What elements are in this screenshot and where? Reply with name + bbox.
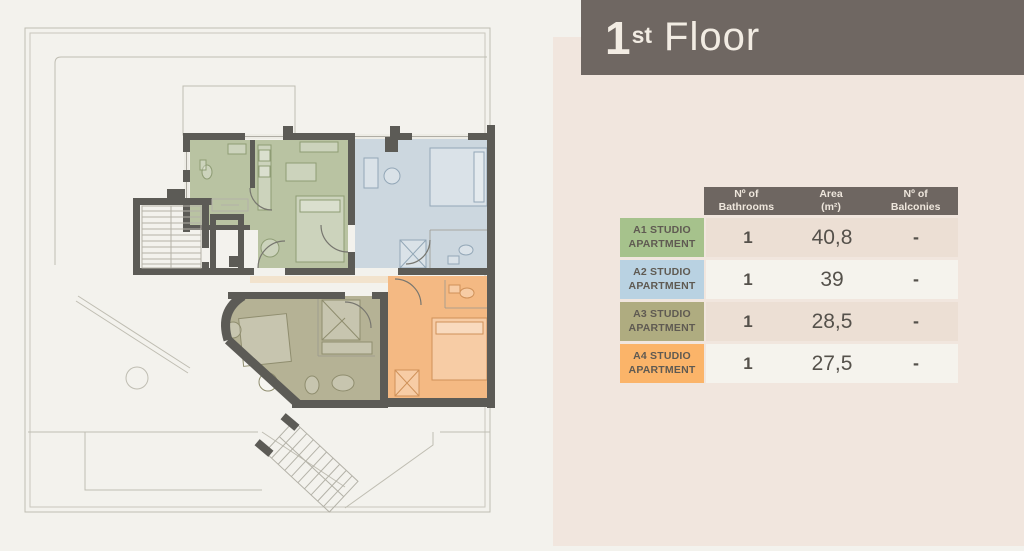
apartment-label-a4: A4 STUDIO APARTMENT xyxy=(620,344,704,383)
table-header-row: Nº of Bathrooms Area (m²) Nº of Balconie… xyxy=(704,187,958,215)
elevator-shaft-wall xyxy=(210,214,216,271)
floor-word: Floor xyxy=(664,15,760,60)
elevator-shaft-wall xyxy=(238,214,244,271)
apartment-label-a2: A2 STUDIO APARTMENT xyxy=(620,260,704,299)
apartments-table: A1 STUDIO APARTMENT 1 40,8 - A2 STUDIO A… xyxy=(620,218,958,386)
table-row-a2: A2 STUDIO APARTMENT 1 39 - xyxy=(620,260,958,299)
table-row-a3: A3 STUDIO APARTMENT 1 28,5 - xyxy=(620,302,958,341)
elevator-shaft-wall xyxy=(210,214,244,220)
bathrooms-value: 1 xyxy=(706,312,790,332)
area-value: 40,8 xyxy=(790,226,874,250)
bathrooms-value: 1 xyxy=(706,228,790,248)
floor-title-bar: 1st Floor xyxy=(581,0,1024,75)
terrace-diagonal xyxy=(76,296,190,373)
balconies-value: - xyxy=(874,227,958,248)
table-row-a1: A1 STUDIO APARTMENT 1 40,8 - xyxy=(620,218,958,257)
corridor-floor xyxy=(250,276,388,283)
apartment-label-a3: A3 STUDIO APARTMENT xyxy=(620,302,704,341)
balconies-value: - xyxy=(874,353,958,374)
area-value: 27,5 xyxy=(790,352,874,376)
floor-number-suffix: st xyxy=(632,22,652,49)
tree-symbol xyxy=(126,367,148,389)
terrace-diagonal xyxy=(262,432,490,508)
window-stub xyxy=(283,126,293,135)
header-balconies: Nº of Balconies xyxy=(873,188,958,214)
wall-stub xyxy=(281,413,300,431)
bathrooms-value: 1 xyxy=(706,354,790,374)
header-area: Area (m²) xyxy=(789,188,874,214)
wall-stub xyxy=(255,439,274,457)
table-row-a4: A4 STUDIO APARTMENT 1 27,5 - xyxy=(620,344,958,383)
area-value: 39 xyxy=(790,268,874,292)
balconies-value: - xyxy=(874,311,958,332)
apartment-label-a1: A1 STUDIO APARTMENT xyxy=(620,218,704,257)
bathrooms-value: 1 xyxy=(706,270,790,290)
floor-plan-drawing xyxy=(0,0,553,546)
balconies-value: - xyxy=(874,269,958,290)
column xyxy=(385,137,398,152)
roof-outline xyxy=(183,86,295,135)
area-value: 28,5 xyxy=(790,310,874,334)
floor-plan xyxy=(0,0,553,546)
floor-number: 1 xyxy=(605,15,631,61)
header-bathrooms: Nº of Bathrooms xyxy=(704,188,789,214)
terrace-line xyxy=(85,432,262,490)
window-stub xyxy=(390,126,400,135)
exterior-staircase xyxy=(265,421,358,512)
